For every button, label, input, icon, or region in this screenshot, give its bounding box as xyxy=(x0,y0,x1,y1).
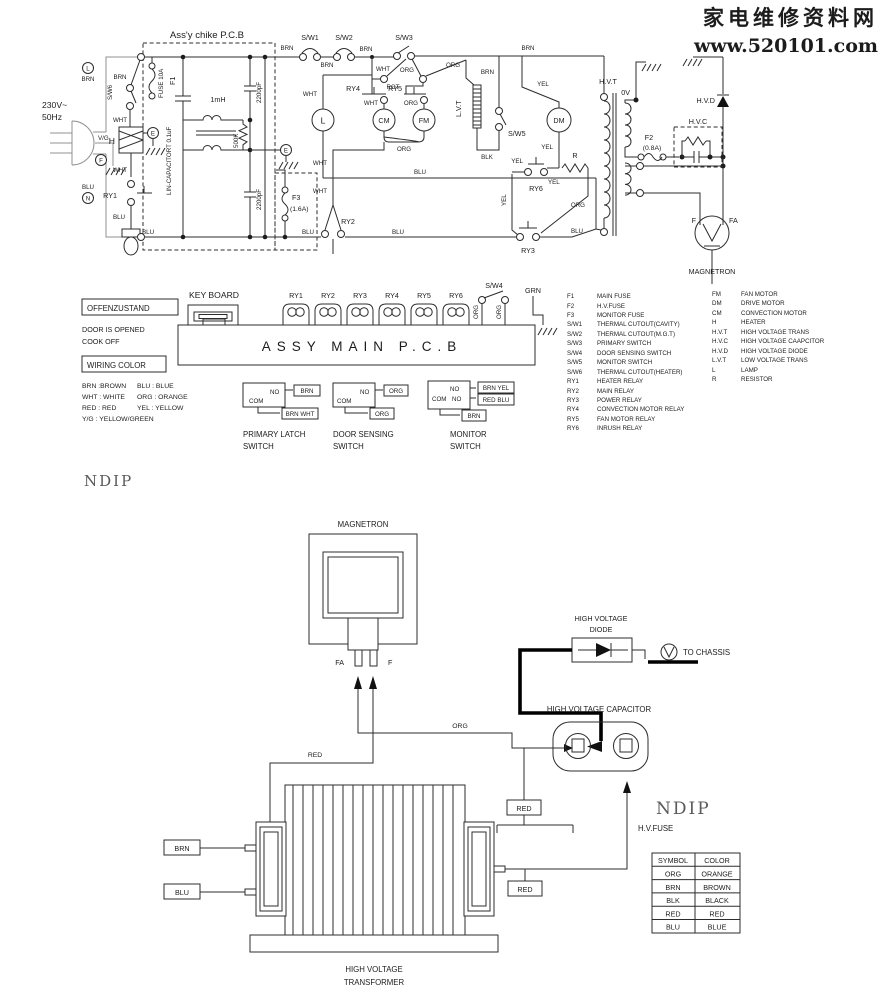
f-terminal-label: F xyxy=(692,216,697,225)
chike-pcb-title: Ass'y chike P.C.B xyxy=(170,30,244,41)
no-label: NO xyxy=(360,389,369,396)
wire-label-yel: YEL xyxy=(537,81,549,88)
watermark-url: www.520101.com xyxy=(693,35,878,57)
wire-label-blu: BLU xyxy=(414,169,426,176)
no-label: NO xyxy=(452,396,461,403)
table-cell: BRN xyxy=(665,883,680,892)
wiring-color-item: BRN :BROWN xyxy=(82,383,126,390)
wire-tag: BRN WHT xyxy=(286,411,315,418)
wire-label-vg: V/G xyxy=(98,135,109,142)
table-header: SYMBOL xyxy=(658,856,688,865)
thermal-cutout-row xyxy=(300,46,605,76)
f1-label: F1 xyxy=(168,77,177,85)
legend-code: H xyxy=(712,319,716,326)
wire-label-blu: BLU xyxy=(571,228,583,235)
legend-desc: LAMP xyxy=(741,367,758,374)
hv-diode-symbol xyxy=(572,638,632,662)
wire-label-wht: WHT xyxy=(303,91,317,98)
wiring-color-item: Y/G : YELLOW/GREEN xyxy=(82,416,154,423)
wiring-color-item: BLU : BLUE xyxy=(137,383,174,390)
wire-color-table: SYMBOL COLOR ORG ORANGE BRN BROWN BLK BL… xyxy=(652,853,740,933)
legend-desc: LOW VOLTAGE TRANS xyxy=(741,357,808,364)
cap-2200pf-label: 2200pF xyxy=(256,82,263,103)
table-cell: ORANGE xyxy=(701,870,732,879)
legend-components: FMFAN MOTOR DMDRIVE MOTOR CMCONVECTION M… xyxy=(712,291,825,383)
table-cell: BROWN xyxy=(703,883,731,892)
wire-tag: ORG xyxy=(375,411,389,418)
terminal-e-label: E xyxy=(151,131,155,138)
wire-tag: RED xyxy=(516,804,531,813)
lin-capacitor-label: LIN-CAPACITORT 0.1uF xyxy=(166,126,173,195)
wire-label-wht: WHT xyxy=(364,100,378,107)
table-cell: ORG xyxy=(665,870,682,879)
primary-latch-switch-detail: NO COM BRN BRN WHT PRIMARY LATCH SWITCH xyxy=(243,383,320,451)
legend-code: S/W5 xyxy=(567,359,583,366)
transformer-title: TRANSFORMER xyxy=(344,978,405,987)
wire-tag: BRN xyxy=(467,413,480,420)
legend-code: S/W3 xyxy=(567,340,583,347)
switch-title: PRIMARY LATCH xyxy=(243,430,305,439)
legend-fuses-switches-relays: F1MAIN FUSE F2H.V.FUSE F3MONITOR FUSE S/… xyxy=(567,293,684,432)
wire-label-org: ORG xyxy=(404,100,418,107)
no-label: NO xyxy=(270,389,279,396)
wiring-color-item: RED : RED xyxy=(82,405,116,412)
legend-desc: DRIVE MOTOR xyxy=(741,300,785,307)
wire-label-org: ORG xyxy=(452,723,467,730)
sw3-label: S/W3 xyxy=(395,33,413,42)
upper-schematic: 230V~ 50Hz L BRN F V/G N BLU BRN S/W6 WH… xyxy=(42,30,738,284)
legend-desc: PRIMARY SWITCH xyxy=(597,340,651,347)
f1-fuse-label: FUSE 10A xyxy=(158,68,165,98)
legend-code: R xyxy=(712,376,717,383)
sw4-symbol xyxy=(479,291,544,325)
microwave-wiring-diagram: 家电维修资料网 www.520101.com 230V~ 50Hz L BRN … xyxy=(0,0,888,1007)
table-cell: BLACK xyxy=(705,896,729,905)
hv-transformer-drawing xyxy=(200,785,505,952)
cap-2200pf-label: 2200pF xyxy=(256,189,263,210)
dm-ry6-wiring xyxy=(512,56,601,241)
wire-label-wht: WHT xyxy=(113,117,127,124)
wiring-color-title: WIRING COLOR xyxy=(87,361,146,370)
legend-desc: POWER RELAY xyxy=(597,397,642,404)
hv-fuse-label: H.V.FUSE xyxy=(638,824,673,833)
bottom-section: MAGNETRON FA F ORG RED RED HIGH VOLTAGE … xyxy=(164,520,740,987)
table-cell: BLK xyxy=(666,896,680,905)
legend-code: DM xyxy=(712,300,722,307)
f2-rating: (0.8A) xyxy=(643,145,662,152)
arrow-up xyxy=(369,676,377,689)
wire-label-wht: WHT xyxy=(113,167,127,174)
wire-label-blu: BLU xyxy=(82,184,94,191)
legend-code: H.V.C xyxy=(712,338,728,345)
heater-label: H xyxy=(109,136,115,146)
wire-label-wht: WHT xyxy=(313,160,327,167)
wiring-color-item: ORG : ORANGE xyxy=(137,394,188,401)
legend-desc: CONVECTION MOTOR RELAY xyxy=(597,406,684,413)
legend-code: S/W1 xyxy=(567,321,583,328)
wire-label-org: ORG xyxy=(400,67,414,74)
sw5-label: S/W5 xyxy=(508,129,526,138)
legend-code: F3 xyxy=(567,312,575,319)
cm-letter: CM xyxy=(378,116,389,125)
wire-label-brn: BRN xyxy=(113,74,126,81)
wire-label-blu: BLU xyxy=(392,229,404,236)
legend-code: FM xyxy=(712,291,721,298)
wire-label-org: ORG xyxy=(571,202,585,209)
lvt-label: L.V.T xyxy=(454,100,463,117)
table-cell: BLU xyxy=(666,923,680,932)
ry1-coil-label: RY1 xyxy=(289,291,303,300)
wire-label-blu: BLU xyxy=(113,214,125,221)
wire-tag: ORG xyxy=(389,388,403,395)
offenzustand-title: OFFENZUSTAND xyxy=(87,304,150,313)
hvt-label: H.V.T xyxy=(599,77,617,86)
ndip-text-left: NDIP xyxy=(84,472,133,490)
fa-pin-label: FA xyxy=(335,658,344,667)
sw4-label: S/W4 xyxy=(485,281,503,290)
keyboard-label: KEY BOARD xyxy=(189,290,239,300)
watermark: 家电维修资料网 www.520101.com xyxy=(693,5,878,57)
legend-code: H.V.T xyxy=(712,329,727,336)
hvc-label: H.V.C xyxy=(689,117,708,126)
legend-desc: MONITOR SWITCH xyxy=(597,359,652,366)
ry2-coil-label: RY2 xyxy=(321,291,335,300)
legend-code: F1 xyxy=(567,293,575,300)
wire-label-org: ORG xyxy=(397,146,411,153)
legend-desc: MONITOR FUSE xyxy=(597,312,644,319)
wire-tag: BRN xyxy=(174,844,189,853)
legend-code: S/W4 xyxy=(567,350,583,357)
legend-code: CM xyxy=(712,310,722,317)
legend-desc: THERMAL CUTOUT(M.G.T) xyxy=(597,331,675,338)
transformer-title: HIGH VOLTAGE xyxy=(345,965,402,974)
wire-label-blk: BLK xyxy=(481,154,494,161)
wire-label-org: ORG xyxy=(446,62,460,69)
legend-desc: THERMAL CUTOUT(CAVITY) xyxy=(597,321,680,328)
to-chassis-label: TO CHASSIS xyxy=(683,648,730,657)
dm-letter: DM xyxy=(553,116,564,125)
ry6-label: RY6 xyxy=(529,184,543,193)
f-pin-label: F xyxy=(388,658,393,667)
hv-thick-wire xyxy=(520,650,601,741)
legend-desc: HIGH VOLTAGE TRANS xyxy=(741,329,809,336)
hvt-section xyxy=(601,56,730,284)
middle-section: OFFENZUSTAND DOOR IS OPENED COOK OFF WIR… xyxy=(82,281,825,490)
f2-label: F2 xyxy=(645,133,653,142)
main-pcb-title: ASSY MAIN P.C.B xyxy=(262,339,463,354)
com-label: COM xyxy=(337,398,351,405)
wire-tag: BRN xyxy=(300,388,313,395)
legend-desc: HEATER xyxy=(741,319,766,326)
legend-code: RY6 xyxy=(567,425,579,432)
ry5-label: RY5 xyxy=(388,84,402,93)
wire-tag: BLU xyxy=(175,888,189,897)
legend-code: RY4 xyxy=(567,406,579,413)
legend-code: H.V.D xyxy=(712,348,728,355)
sw1-label: S/W1 xyxy=(301,33,319,42)
terminal-l-label: L xyxy=(86,66,90,73)
ry4-label: RY4 xyxy=(346,84,360,93)
hv-diode-title: HIGH VOLTAGE xyxy=(575,614,628,623)
sw2-label: S/W2 xyxy=(335,33,353,42)
terminal-f-label: F xyxy=(99,158,103,165)
ry2-neutral-wiring xyxy=(322,131,597,254)
legend-code: L.V.T xyxy=(712,357,726,364)
supply-voltage: 230V~ xyxy=(42,100,67,110)
ry5-coil-label: RY5 xyxy=(417,291,431,300)
com-label: COM xyxy=(432,396,446,403)
switch-title: SWITCH xyxy=(243,442,274,451)
terminal-e-label: E xyxy=(284,148,288,155)
magnetron-label: MAGNETRON xyxy=(689,267,736,276)
legend-code: S/W2 xyxy=(567,331,583,338)
magnetron-drawing xyxy=(309,534,417,666)
legend-desc: H.V.FUSE xyxy=(597,303,625,310)
sw6-label: S/W6 xyxy=(107,84,114,100)
supply-frequency: 50Hz xyxy=(42,112,62,122)
ry2-label: RY2 xyxy=(341,217,355,226)
f3-label: F3 xyxy=(292,193,300,202)
switch-title: SWITCH xyxy=(333,442,364,451)
wire-label-org: ORG xyxy=(473,305,480,319)
res-500k-label: 500K xyxy=(233,133,240,148)
fa-terminal-label: FA xyxy=(729,216,738,225)
legend-desc: RESISTOR xyxy=(741,376,773,383)
wire-tag: RED xyxy=(517,885,532,894)
com-label: COM xyxy=(249,398,263,405)
wiring-color-item: YEL : YELLOW xyxy=(137,405,184,412)
wire-label-brn: BRN xyxy=(359,46,372,53)
fm-letter: FM xyxy=(419,116,429,125)
legend-desc: INRUSH RELAY xyxy=(597,425,642,432)
legend-desc: FAN MOTOR xyxy=(741,291,778,298)
legend-code: F2 xyxy=(567,303,575,310)
magnetron-title: MAGNETRON xyxy=(338,520,389,529)
legend-desc: THERMAL CUTOUT(HEATER) xyxy=(597,369,682,376)
table-cell: RED xyxy=(709,909,724,918)
legend-code: S/W6 xyxy=(567,369,583,376)
inductor-label: 1mH xyxy=(210,95,225,104)
wire-label-brn: BRN xyxy=(521,45,534,52)
legend-desc: DOOR SENSING SWITCH xyxy=(597,350,671,357)
wire-label-brn: BRN xyxy=(320,62,333,69)
legend-code: L xyxy=(712,367,716,374)
lamp-letter: L xyxy=(321,116,326,126)
wire-label-brn: BRN xyxy=(481,69,494,76)
f3-rating: (1.6A) xyxy=(290,206,309,213)
hv-capacitor-title: HIGH VOLTAGE CAPACITOR xyxy=(547,705,652,714)
legend-code: RY2 xyxy=(567,388,579,395)
ndip-text-right: NDIP xyxy=(656,799,711,819)
wire-label-yel: YEL xyxy=(501,194,508,206)
wire-tag: BRN YEL xyxy=(483,385,510,392)
legend-desc: HIGH VOLTAGE CAAPCITOR xyxy=(741,338,825,345)
legend-desc: MAIN RELAY xyxy=(597,388,634,395)
legend-desc: HIGH VOLTAGE DIODE xyxy=(741,348,808,355)
ry6-coil-label: RY6 xyxy=(449,291,463,300)
wire-label-wht: WHT xyxy=(376,66,390,73)
ry4-coil-label: RY4 xyxy=(385,291,399,300)
wire-label-org: ORG xyxy=(496,305,503,319)
watermark-brand: 家电维修资料网 xyxy=(703,5,878,30)
switch-title: MONITOR xyxy=(450,430,487,439)
legend-code: RY3 xyxy=(567,397,579,404)
table-cell: BLUE xyxy=(708,923,727,932)
wiring-color-item: WHT : WHITE xyxy=(82,394,125,401)
wire-label-yel: YEL xyxy=(548,179,560,186)
monitor-switch-detail: NO COM NO BRN YEL RED BLU BRN MONITOR SW… xyxy=(428,381,514,451)
table-header: COLOR xyxy=(704,856,730,865)
table-cell: RED xyxy=(665,909,680,918)
legend-desc: CONVECTION MOTOR xyxy=(741,310,807,317)
offen-line2: COOK OFF xyxy=(82,337,120,346)
wire-label-red: RED xyxy=(308,752,322,759)
wire-label-grn: GRN xyxy=(525,286,541,295)
terminal-n-label: N xyxy=(86,196,90,203)
wire-label-yel: YEL xyxy=(541,144,553,151)
ry3-label: RY3 xyxy=(521,246,535,255)
wire-label-brn: BRN xyxy=(280,45,293,52)
legend-code: RY5 xyxy=(567,416,579,423)
wire-label-yel: YEL xyxy=(511,158,523,165)
ry3-coil-label: RY3 xyxy=(353,291,367,300)
hv-diode-title: DIODE xyxy=(590,625,613,634)
legend-desc: FAN MOTOR RELAY xyxy=(597,416,655,423)
resistor-label: R xyxy=(572,151,577,160)
wire-label-blu: BLU xyxy=(302,229,314,236)
no-label: NO xyxy=(450,386,459,393)
wire-tag: RED BLU xyxy=(483,397,510,404)
arrow-up xyxy=(354,676,362,689)
wire-label-brn: BRN xyxy=(81,76,94,83)
legend-desc: HEATER RELAY xyxy=(597,378,643,385)
door-sensing-switch-detail: NO COM ORG ORG DOOR SENSING SWITCH xyxy=(333,383,408,451)
sw6-heater-chain xyxy=(119,60,159,255)
switch-title: DOOR SENSING xyxy=(333,430,394,439)
legend-code: RY1 xyxy=(567,378,579,385)
offen-line1: DOOR IS OPENED xyxy=(82,325,145,334)
switch-title: SWITCH xyxy=(450,442,481,451)
legend-desc: MAIN FUSE xyxy=(597,293,631,300)
zero-v-label: 0V xyxy=(621,88,630,97)
hvd-label: H.V.D xyxy=(696,96,715,105)
ry1-label: RY1 xyxy=(103,191,117,200)
wire-label-wht: WHT xyxy=(313,188,327,195)
